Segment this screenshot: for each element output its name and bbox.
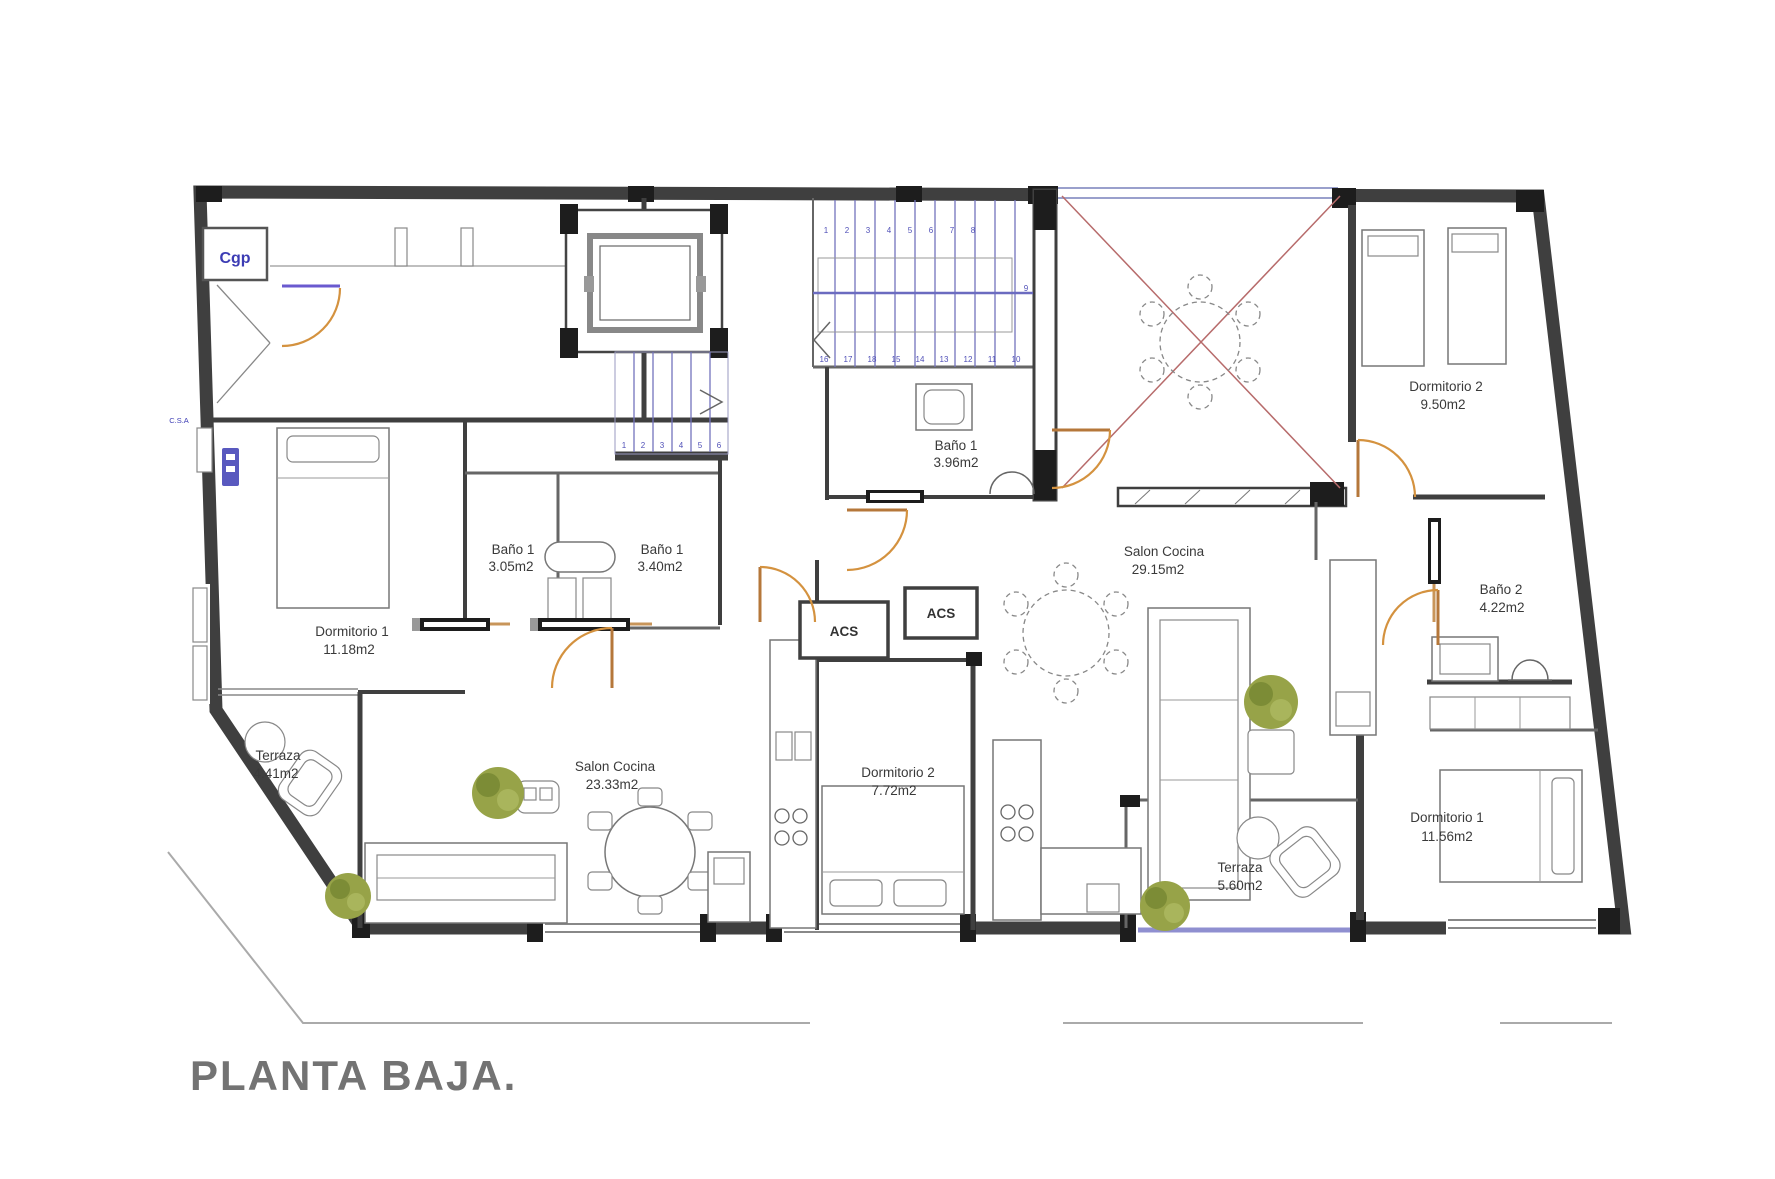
chair (638, 788, 662, 806)
kitchen-counter (993, 740, 1041, 920)
stair-step-number: 4 (679, 441, 684, 450)
door-arc (1383, 590, 1438, 645)
stair-step-number: 18 (868, 355, 877, 364)
stair-step-number: 6 (929, 226, 934, 235)
sink (776, 732, 792, 760)
dining-table (1023, 590, 1109, 676)
floor-plan-drawing: Cgp C.S.A 1 2 3 4 5 (0, 0, 1775, 1179)
room-area-right-dormitorio2: 9.50m2 (1420, 397, 1465, 412)
room-label-right-bano2: Baño 2 (1480, 582, 1523, 597)
door-arc (1358, 440, 1415, 497)
sink (1336, 692, 1370, 726)
room-area-left-bano-b: 3.40m2 (637, 559, 682, 574)
side-table (1248, 730, 1294, 774)
plant (472, 767, 524, 819)
dining-table (605, 807, 695, 897)
stair-step-number: 12 (964, 355, 973, 364)
floor-plan-page: Cgp C.S.A 1 2 3 4 5 (0, 0, 1775, 1179)
room-area-left-bano-a: 3.05m2 (488, 559, 533, 574)
plant (1244, 675, 1298, 729)
elevator-shaft (560, 204, 728, 358)
stair-step-number: 4 (887, 226, 892, 235)
stair-step-number: 8 (971, 226, 976, 235)
stair-step-number: 2 (845, 226, 850, 235)
room-area-right-dormitorio1: 11.56m2 (1421, 829, 1473, 844)
plant (1140, 881, 1190, 931)
acs-label: ACS (830, 624, 859, 639)
stair-step-number: 14 (916, 355, 925, 364)
acs-units: ACS ACS (800, 588, 977, 658)
door-arc (552, 628, 612, 688)
stair-step-number: 3 (866, 226, 871, 235)
room-label-left-bano-b: Baño 1 (641, 542, 684, 557)
acs-label: ACS (927, 606, 956, 621)
room-area-right-salon: 29.15m2 (1132, 562, 1185, 577)
bathroom-fixtures (545, 384, 1552, 681)
room-area-center-dormitorio2: 7.72m2 (871, 783, 916, 798)
door-arc (847, 510, 907, 570)
service-stairs: 1 2 3 4 5 6 (615, 352, 728, 454)
room-area-left-terraza: 4.41m2 (253, 766, 298, 781)
room-area-left-salon: 23.33m2 (586, 777, 639, 792)
stair-step-number: 3 (660, 441, 665, 450)
chair (588, 812, 612, 830)
room-label-left-dormitorio1: Dormitorio 1 (315, 624, 389, 639)
stair-step-number: 10 (1012, 355, 1021, 364)
meter-box (197, 428, 212, 472)
room-label-left-salon: Salon Cocina (575, 759, 656, 774)
room-area-right-bano2: 4.22m2 (1479, 600, 1524, 615)
room-label-center-dormitorio2: Dormitorio 2 (861, 765, 935, 780)
stair-step-number: 6 (717, 441, 722, 450)
room-label-left-bano-a: Baño 1 (492, 542, 535, 557)
stair-step-number: 13 (940, 355, 949, 364)
closet (1430, 697, 1570, 729)
stair-step-number: 11 (988, 355, 997, 364)
room-area-right-terraza: 5.60m2 (1217, 878, 1262, 893)
shower (583, 578, 611, 622)
room-label-center-bano1: Baño 1 (935, 438, 978, 453)
main-staircase: 1 2 3 4 5 6 7 8 9 16 17 18 15 14 13 12 1… (813, 200, 1033, 367)
room-label-left-terraza: Terraza (255, 748, 301, 763)
toilet (990, 472, 1034, 494)
sink (1087, 884, 1119, 912)
cgp-label: Cgp (219, 250, 250, 267)
shower (548, 578, 576, 622)
room-label-right-salon: Salon Cocina (1124, 544, 1205, 559)
chair (688, 812, 712, 830)
chair (638, 896, 662, 914)
stair-step-number: 16 (820, 355, 829, 364)
stair-step-number: 2 (641, 441, 646, 450)
stair-step-number: 1 (824, 226, 829, 235)
stair-step-number: 1 (622, 441, 627, 450)
room-label-right-dormitorio1: Dormitorio 1 (1410, 810, 1484, 825)
page-title: PLANTA BAJA. (190, 1052, 517, 1100)
stair-direction-arrow (700, 390, 722, 414)
stair-step-number: 7 (950, 226, 955, 235)
stair-step-number: 9 (1024, 284, 1029, 293)
stair-step-number: 17 (844, 355, 853, 364)
beds (277, 228, 1582, 914)
sink (795, 732, 811, 760)
room-label-right-dormitorio2: Dormitorio 2 (1409, 379, 1483, 394)
stair-step-number: 5 (698, 441, 703, 450)
stair-direction-arrow (814, 322, 830, 358)
kitchen-counter (770, 640, 816, 928)
room-area-left-dormitorio1: 11.18m2 (323, 642, 375, 657)
stair-step-number: 15 (892, 355, 901, 364)
chair (588, 872, 612, 890)
patio-courtyard (1062, 196, 1340, 488)
doors (552, 430, 1438, 688)
bathtub (545, 542, 615, 572)
csa-label: C.S.A (169, 416, 189, 425)
plant (325, 873, 371, 919)
toilet (1512, 660, 1548, 680)
door-arc (1052, 430, 1110, 488)
stair-step-number: 5 (908, 226, 913, 235)
room-label-right-terraza: Terraza (1217, 860, 1263, 875)
room-area-center-bano1: 3.96m2 (933, 455, 978, 470)
